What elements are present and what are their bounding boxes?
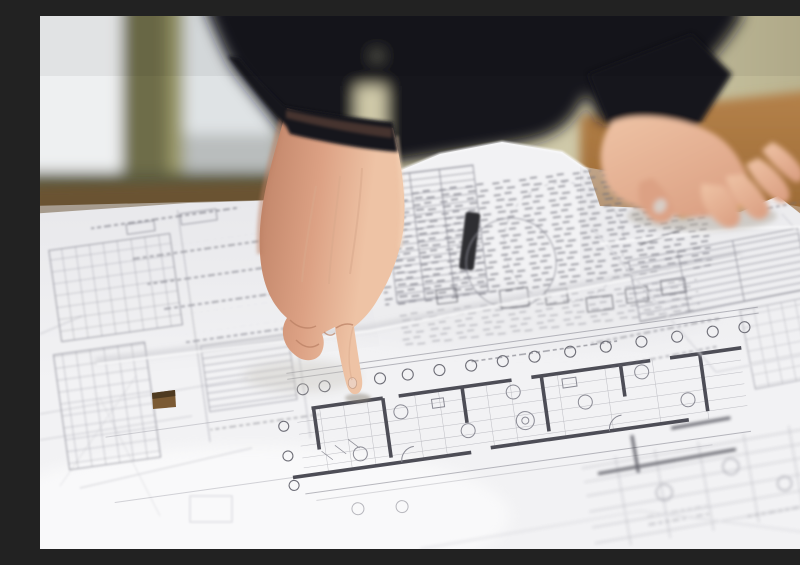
vignette-top bbox=[40, 16, 800, 76]
scene-canvas bbox=[40, 16, 800, 549]
fingertip-shadow bbox=[345, 394, 371, 403]
photo-blueprint-pointing bbox=[40, 16, 800, 549]
punch-hole bbox=[152, 390, 176, 409]
